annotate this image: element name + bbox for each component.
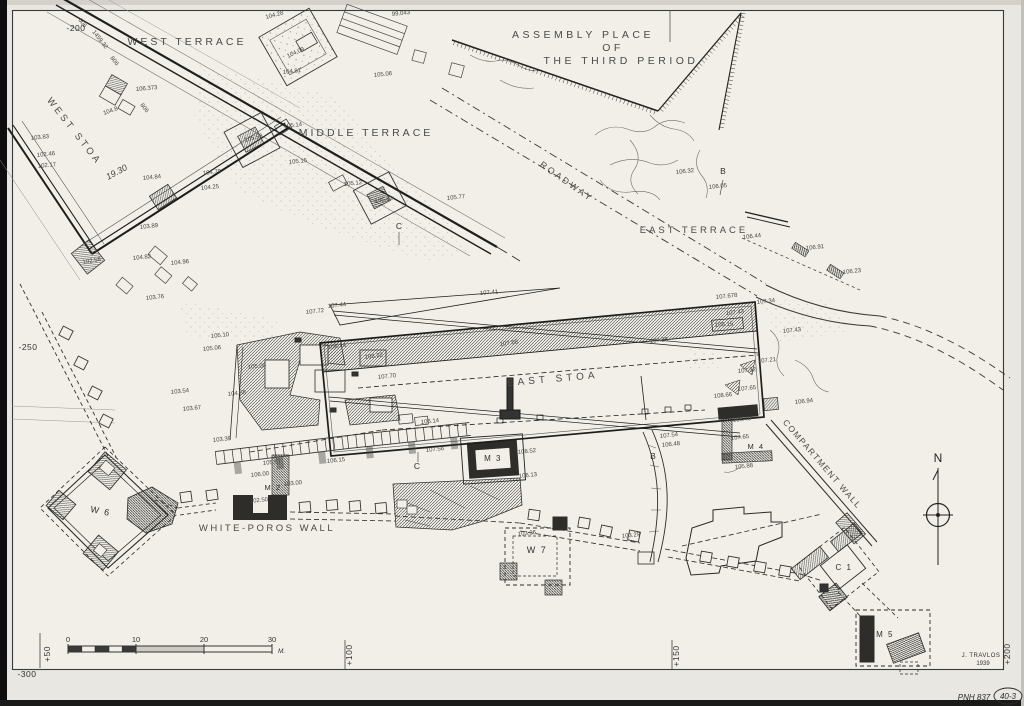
scale-tick-10: 10 — [132, 635, 140, 644]
wall-tower — [600, 525, 613, 537]
wall-tower — [375, 503, 387, 514]
surveyor-credit: J. TRAVLOS — [962, 653, 1001, 659]
plan-drawing: WEST TERRACE MIDDLE TERRACE ASSEMBLY PLA… — [0, 0, 1024, 706]
wall-tower — [349, 501, 361, 512]
wall-tower — [779, 565, 792, 577]
survey-year: 1939 — [976, 661, 990, 667]
label-m4: M 4 — [747, 442, 764, 451]
label-white-poros-wall: WHITE-POROS WALL — [199, 523, 335, 534]
label-m5: M 5 — [876, 630, 894, 639]
wall-tower — [299, 502, 311, 513]
grid-bottom-50: +50 — [42, 646, 52, 662]
wall-block — [366, 446, 374, 459]
wall-block — [408, 441, 416, 454]
label-c1: C 1 — [836, 563, 853, 572]
label-west-terrace: WEST TERRACE — [127, 36, 246, 48]
scale-tick-0: 0 — [66, 635, 70, 644]
wall-tower — [578, 517, 591, 529]
wall-tower — [700, 551, 713, 563]
wall-tower — [727, 556, 740, 568]
label-w7: W 7 — [527, 545, 548, 555]
compass-north-label: N — [934, 451, 943, 465]
section-marker-b2: B — [650, 451, 656, 461]
wall-tower — [754, 561, 767, 573]
grid-bottom-200: +200 — [1002, 643, 1012, 664]
wall-tower — [206, 489, 218, 500]
grid-bottom-100: +100 — [344, 644, 354, 665]
scale-unit: M. — [278, 648, 285, 655]
section-marker-b1: B — [720, 166, 726, 176]
label-m2: M 2 — [264, 483, 281, 492]
scanned-site-plan: WEST TERRACE MIDDLE TERRACE ASSEMBLY PLA… — [0, 0, 1024, 706]
label-m3: M 3 — [484, 454, 502, 463]
label-east-terrace: EAST TERRACE — [640, 225, 749, 236]
grid-left-250: -250 — [18, 342, 37, 352]
section-marker-c1: C — [396, 221, 402, 231]
wall-block — [234, 462, 242, 475]
scan-edge-bottom — [0, 700, 1024, 706]
wall-tower — [326, 500, 338, 511]
label-assembly-1: ASSEMBLY PLACE — [512, 29, 654, 41]
wall-block — [450, 437, 458, 450]
wall-tower — [528, 509, 540, 520]
grid-left-300: -300 — [17, 669, 36, 679]
label-assembly-3: THE THIRD PERIOD — [544, 55, 699, 67]
scan-edge-left — [0, 0, 7, 706]
sheet-number: 40-3 — [1000, 692, 1017, 701]
catalog-number: PNH 837 — [958, 693, 991, 702]
scale-tick-30: 30 — [268, 635, 276, 644]
label-assembly-2: OF — [602, 42, 624, 54]
wall-block — [318, 451, 326, 464]
scan-edge-top — [0, 0, 1024, 5]
scale-tick-20: 20 — [200, 635, 208, 644]
section-marker-c2: C — [414, 461, 420, 471]
label-middle-terrace: MIDDLE TERRACE — [299, 127, 434, 139]
grid-bottom-150: +150 — [671, 645, 681, 666]
wall-tower — [180, 491, 192, 502]
